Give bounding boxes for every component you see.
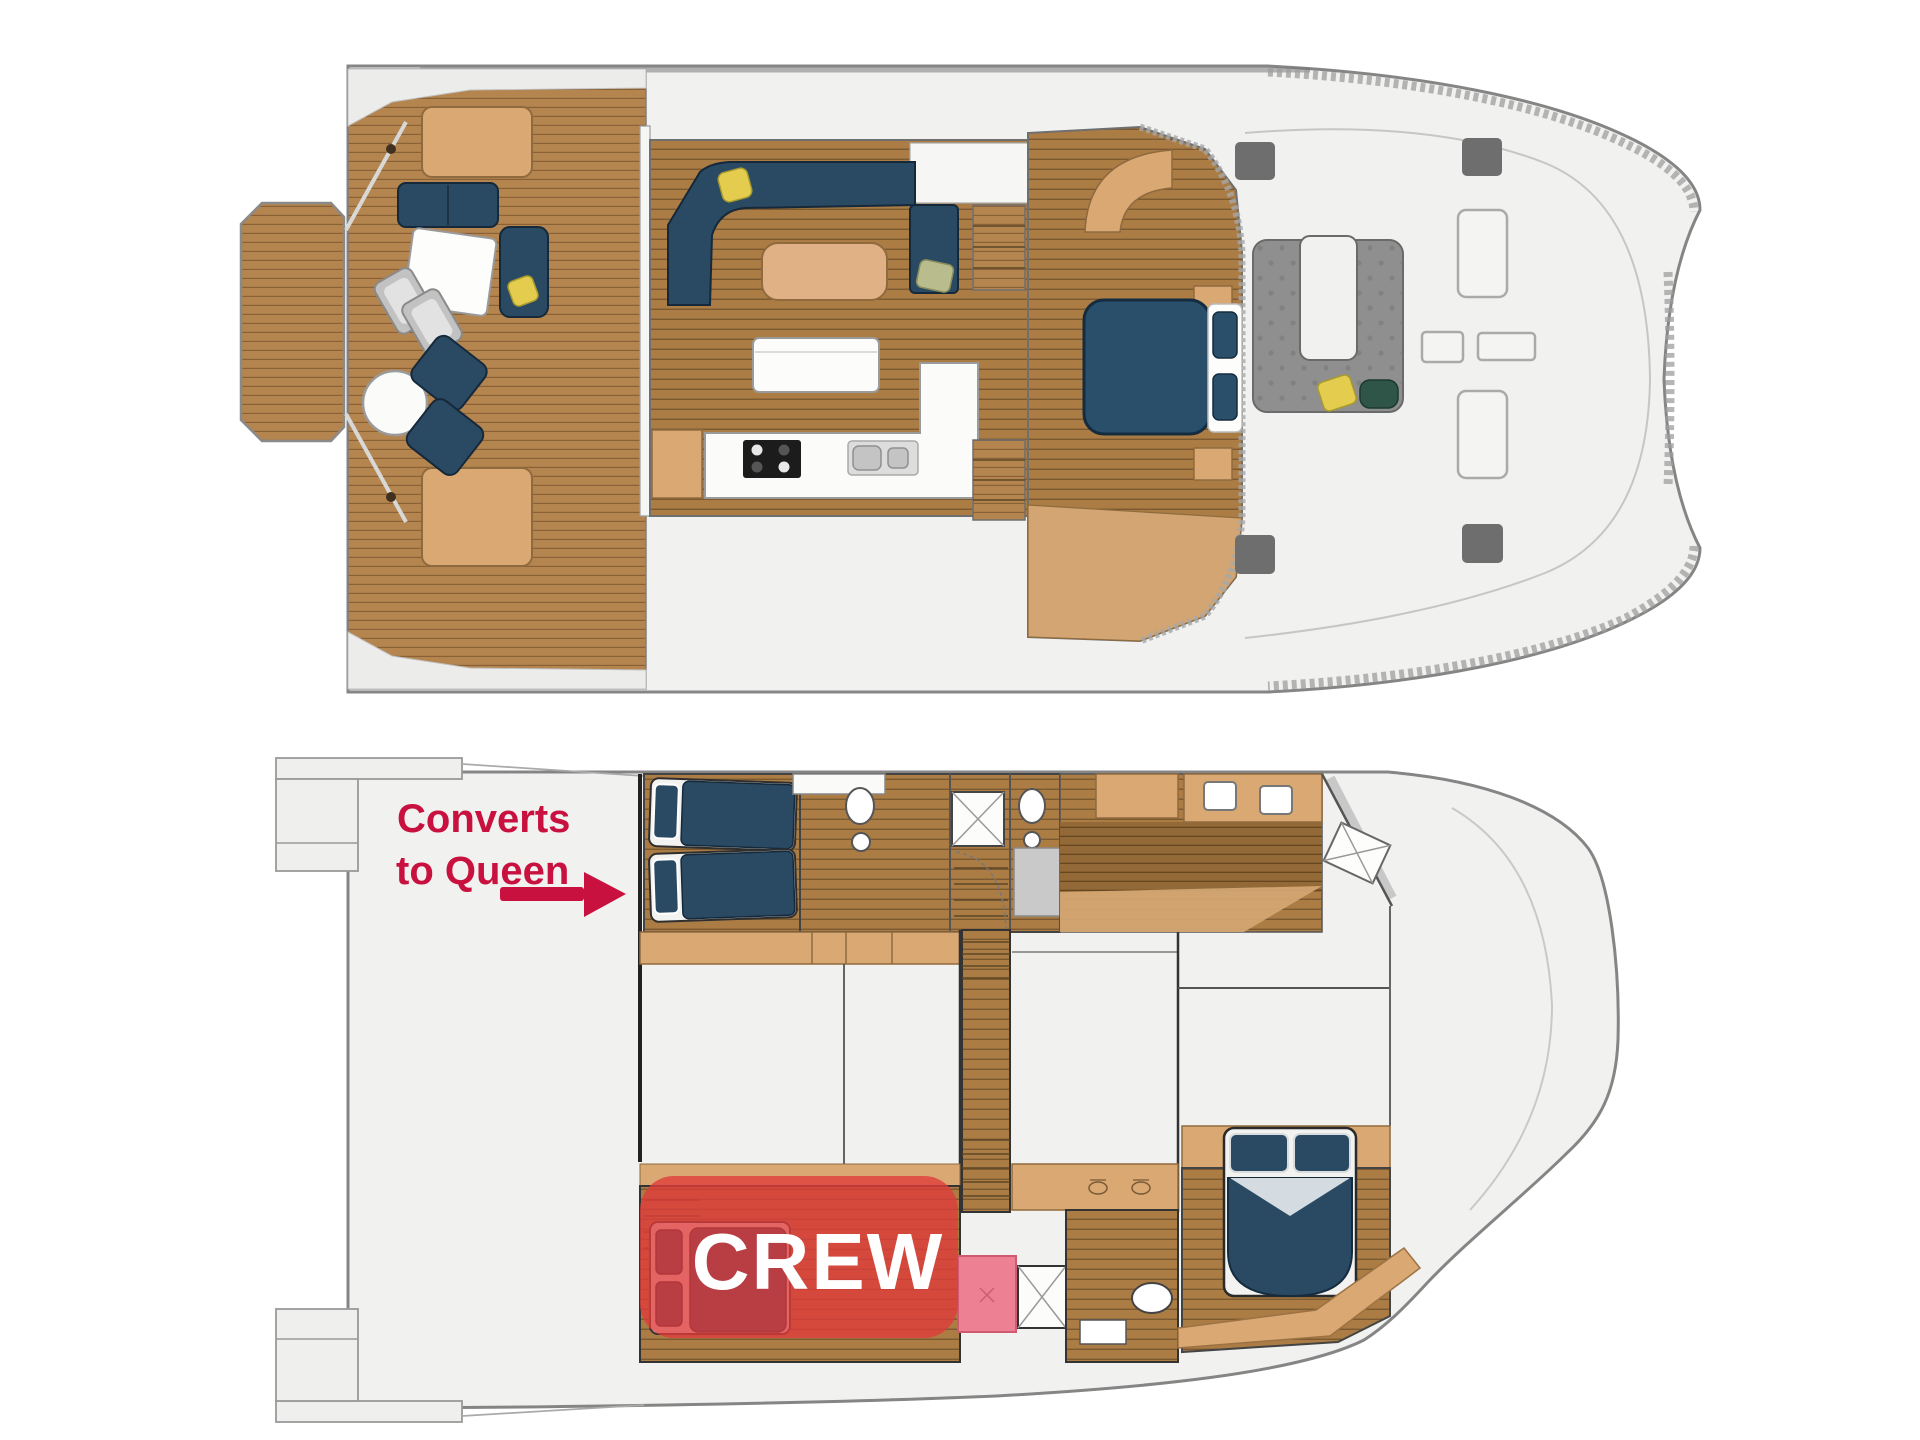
double-cabin bbox=[1178, 1126, 1420, 1352]
deck-hatch-4 bbox=[1462, 524, 1503, 563]
deck-hatch-1 bbox=[1235, 142, 1275, 180]
sink-3 bbox=[1080, 1320, 1126, 1344]
floorplan-drawing: Converts to Queen CREW bbox=[0, 0, 1920, 1440]
galley-island bbox=[753, 338, 879, 392]
bow-pad-outline-1 bbox=[1458, 210, 1507, 297]
twin-bed-1 bbox=[649, 778, 797, 851]
twin-cabin bbox=[644, 774, 800, 932]
tv-cabinet bbox=[910, 143, 1028, 203]
cooktop bbox=[743, 440, 801, 478]
stairs-up-top bbox=[973, 205, 1025, 290]
bow-cockpit-seating bbox=[1253, 236, 1403, 413]
sink-1 bbox=[852, 833, 870, 851]
converts-label-line1: Converts bbox=[397, 797, 570, 841]
twin-bed-2 bbox=[649, 849, 797, 922]
stairwell-column bbox=[962, 930, 1010, 1212]
vanity-two-sinks bbox=[1012, 1164, 1178, 1210]
crew-label: CREW bbox=[692, 1217, 944, 1306]
helm-lounge bbox=[1028, 127, 1242, 641]
locker-strip-top bbox=[640, 932, 960, 964]
double-bed bbox=[1224, 1128, 1356, 1296]
cleat-top bbox=[386, 144, 396, 154]
main-deck-plan bbox=[241, 66, 1700, 692]
salon-bulkhead bbox=[640, 126, 650, 516]
bow-pad-outline-2 bbox=[1458, 391, 1507, 478]
deck-hatch-3 bbox=[1235, 535, 1275, 574]
galley-sink bbox=[848, 441, 918, 475]
coffee-table bbox=[762, 243, 887, 300]
cleat-bottom bbox=[386, 492, 396, 502]
bow-locker-1 bbox=[1422, 332, 1463, 362]
sun-pad-navy bbox=[1084, 300, 1210, 434]
corridor-cabinet-1 bbox=[1096, 774, 1178, 818]
shower-1 bbox=[952, 792, 1004, 846]
salon bbox=[640, 126, 1028, 520]
converts-label-line2: to Queen bbox=[396, 849, 569, 893]
landing-gray bbox=[1014, 848, 1060, 916]
sun-lounger-bottom bbox=[422, 468, 532, 566]
sun-pad-pillow-2 bbox=[1213, 374, 1237, 420]
helm-shelf-bottom bbox=[1194, 448, 1232, 480]
toilet-3 bbox=[1132, 1283, 1172, 1313]
sun-pad-pillow-1 bbox=[1213, 312, 1237, 358]
deck-hatch-2 bbox=[1462, 138, 1502, 176]
lamp-2 bbox=[1260, 786, 1292, 814]
port-bathroom bbox=[793, 774, 1060, 932]
lamp-1 bbox=[1204, 782, 1236, 810]
bow-cockpit-opening bbox=[1300, 236, 1357, 360]
corridor-floor-dark bbox=[1060, 822, 1322, 892]
galley-cabinet-tan bbox=[652, 430, 702, 498]
sink-2 bbox=[1024, 832, 1040, 848]
sun-lounger-top bbox=[422, 107, 532, 177]
bow-locker-2 bbox=[1478, 333, 1535, 360]
converts-arrow-shaft bbox=[500, 887, 584, 901]
toilet-2 bbox=[1019, 789, 1045, 823]
lower-deck-plan: Converts to Queen CREW bbox=[276, 758, 1618, 1422]
swim-platform bbox=[241, 203, 344, 441]
toilet-1 bbox=[846, 788, 874, 824]
crew-annotation: CREW bbox=[640, 1176, 958, 1338]
bathroom-counter bbox=[793, 774, 885, 794]
shower-2 bbox=[1018, 1266, 1066, 1328]
stairs-up-bottom bbox=[973, 440, 1025, 520]
yacht-floorplan: Converts to Queen CREW bbox=[0, 0, 1920, 1440]
pillow-green-bow bbox=[1360, 380, 1398, 408]
pillow-olive-sofa bbox=[915, 259, 954, 293]
